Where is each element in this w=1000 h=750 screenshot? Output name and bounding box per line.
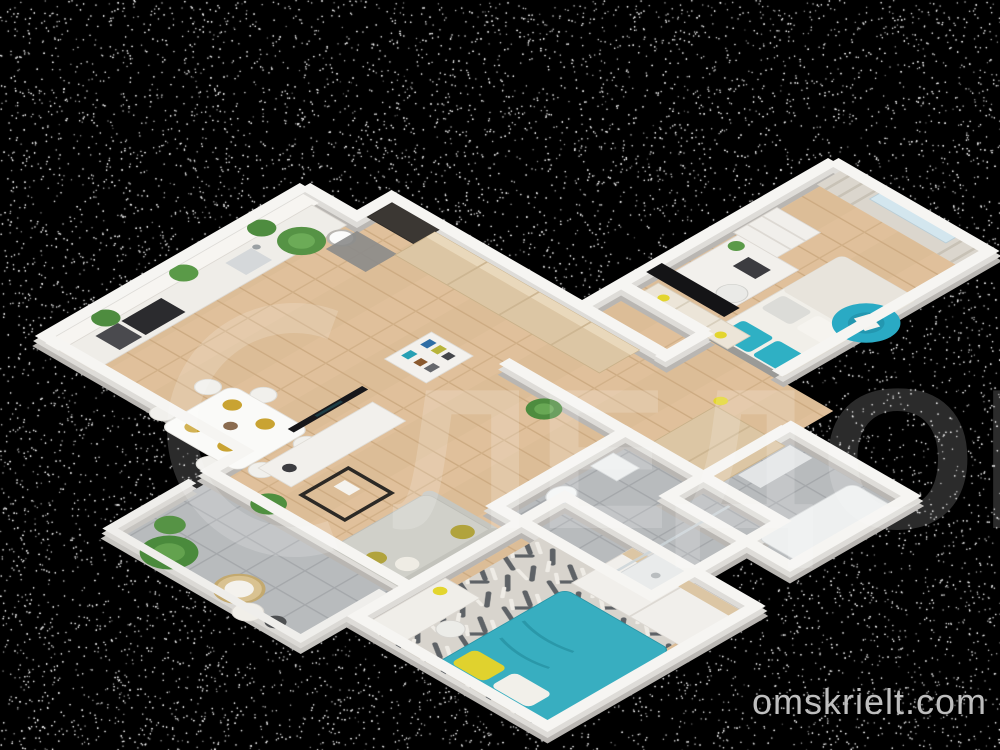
watermark-logo-text: ЛЕДОН [392,348,1000,571]
site-watermark: omskrielt.com [752,681,987,722]
apartment-floorplan-render: ЛЕДОН omskrielt.com [0,0,1000,750]
screenshot-stage: ЛЕДОН omskrielt.com [0,0,1000,750]
living-tv-reflection [328,408,331,410]
